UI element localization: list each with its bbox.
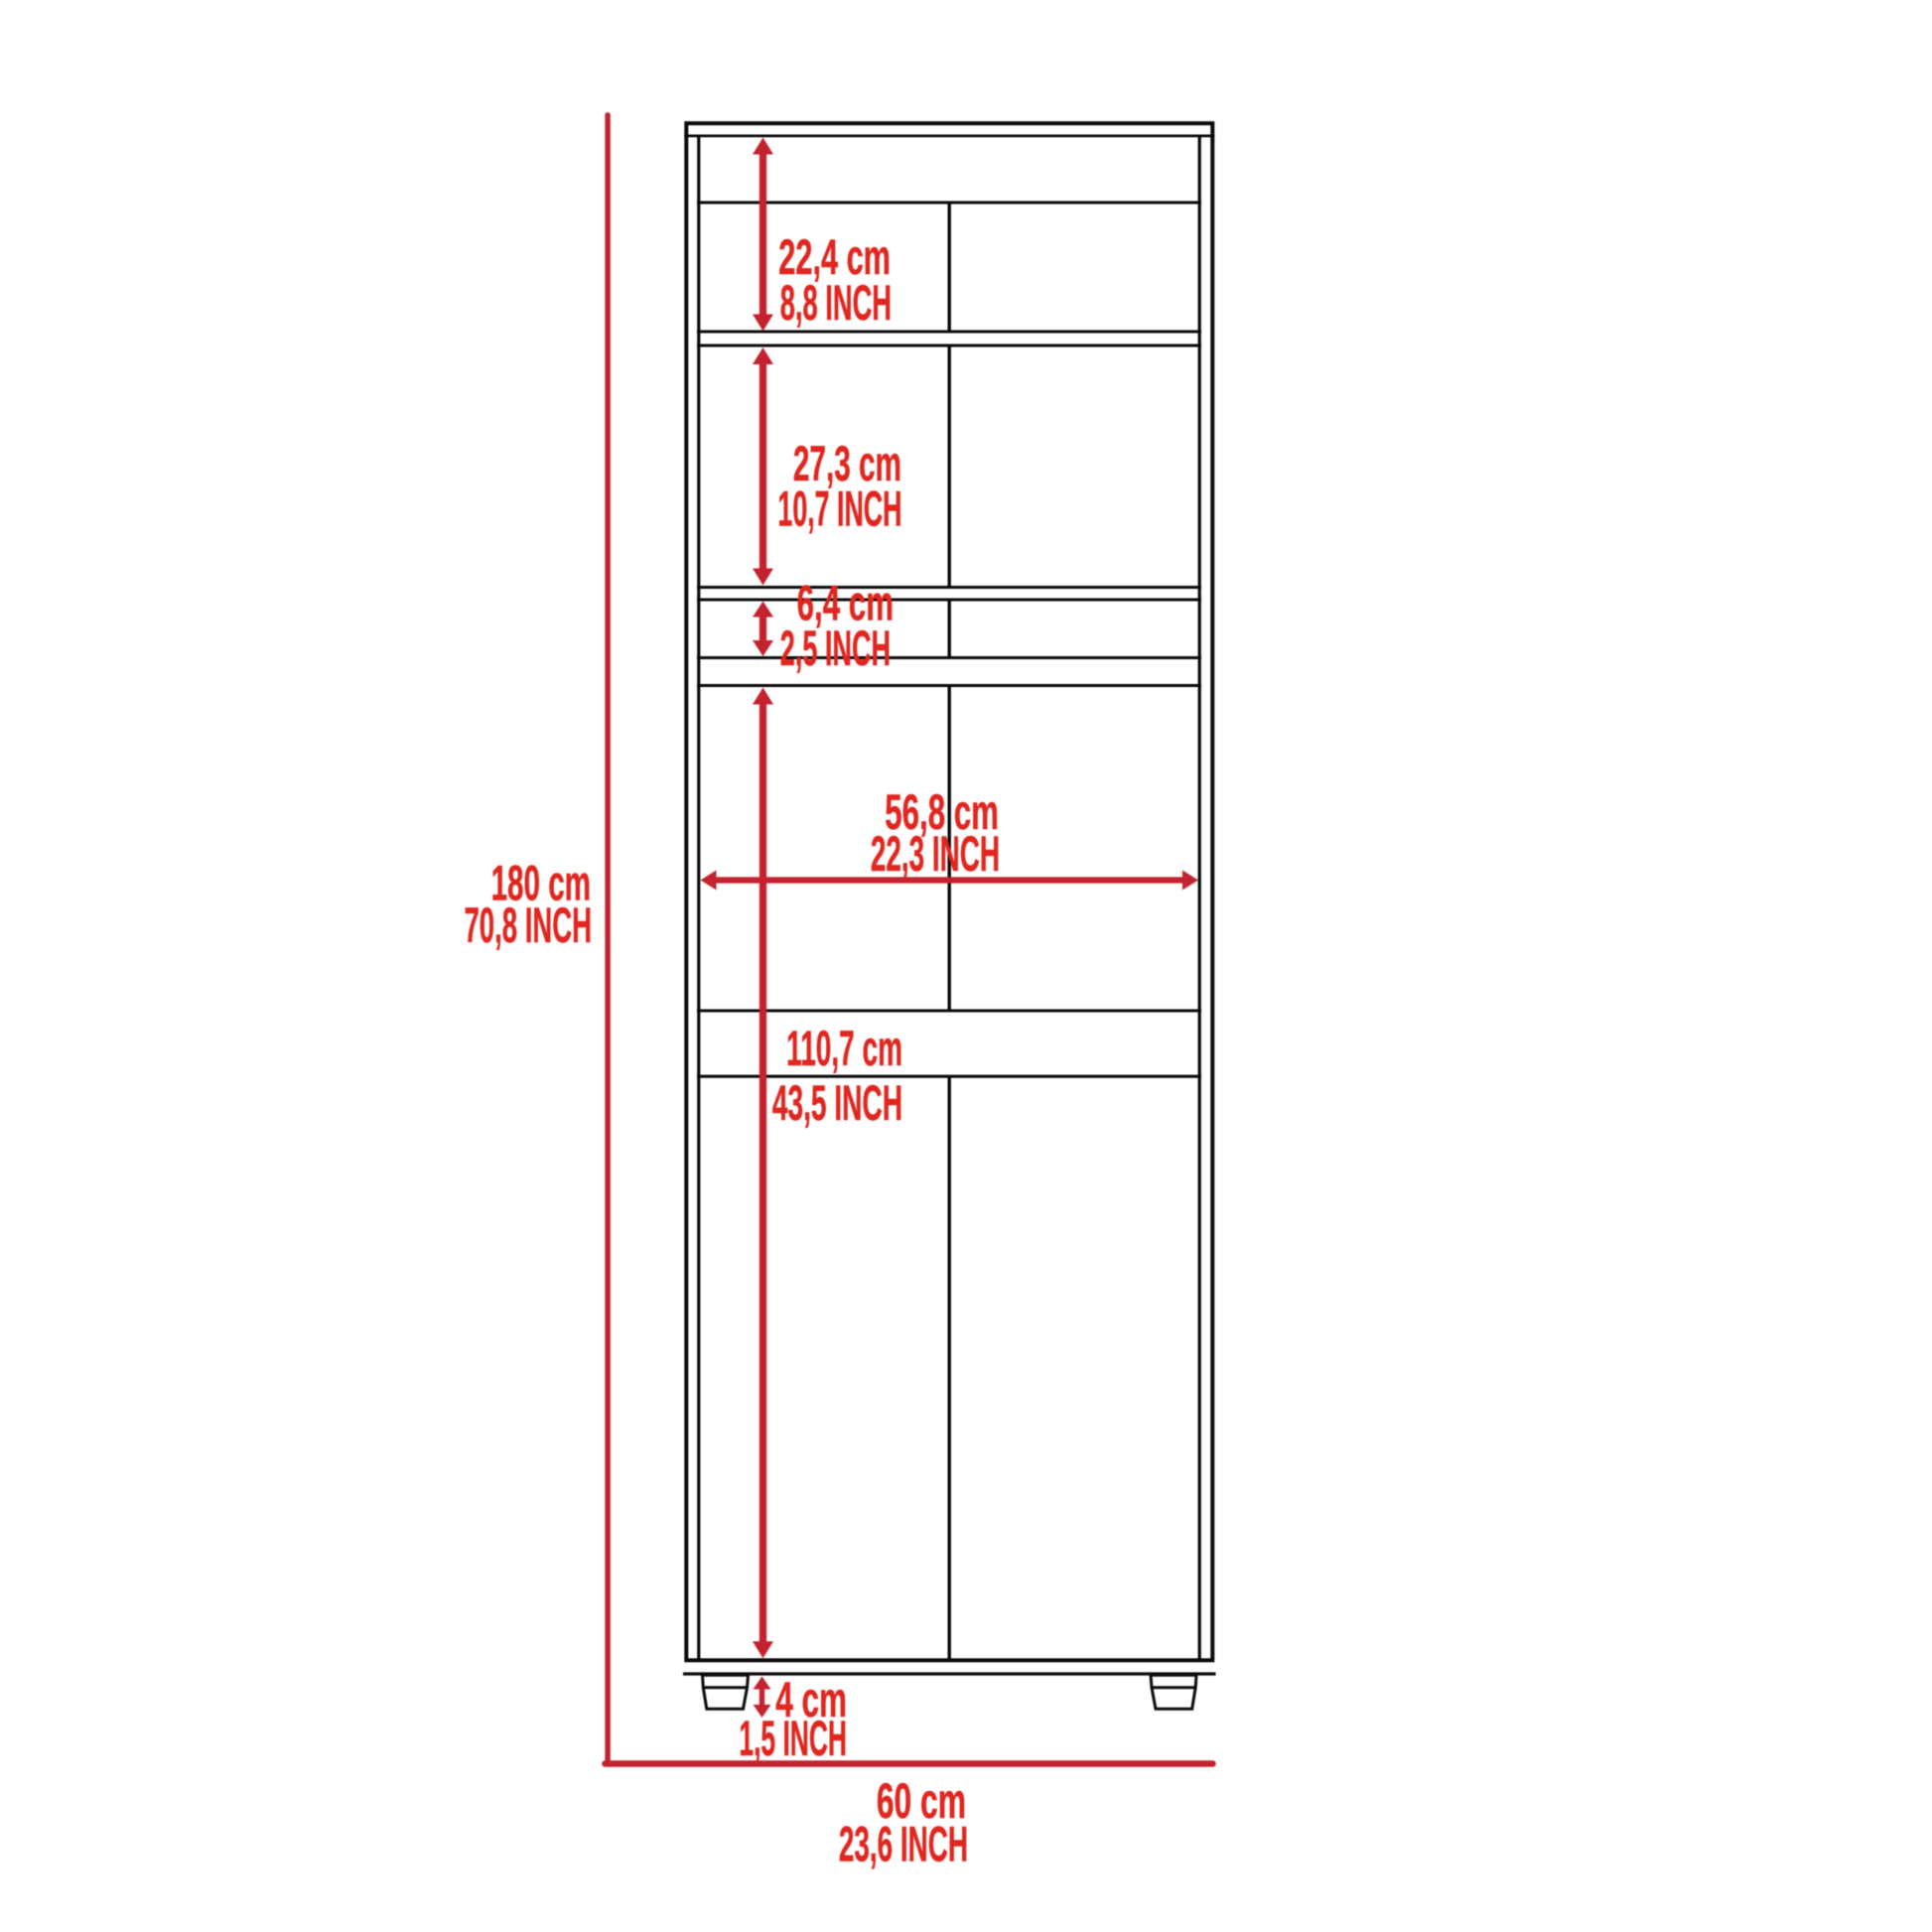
svg-text:10,7 INCH: 10,7 INCH [777, 483, 901, 537]
svg-text:23,6 INCH: 23,6 INCH [839, 1816, 968, 1872]
svg-text:70,8 INCH: 70,8 INCH [464, 897, 592, 953]
svg-text:8,8 INCH: 8,8 INCH [780, 275, 892, 331]
svg-text:1,5 INCH: 1,5 INCH [739, 1712, 847, 1766]
svg-text:43,5 INCH: 43,5 INCH [772, 1074, 902, 1131]
svg-text:2,5 INCH: 2,5 INCH [780, 621, 891, 676]
svg-text:22,3 INCH: 22,3 INCH [871, 825, 1000, 882]
svg-text:110,7 cm: 110,7 cm [786, 1020, 902, 1076]
